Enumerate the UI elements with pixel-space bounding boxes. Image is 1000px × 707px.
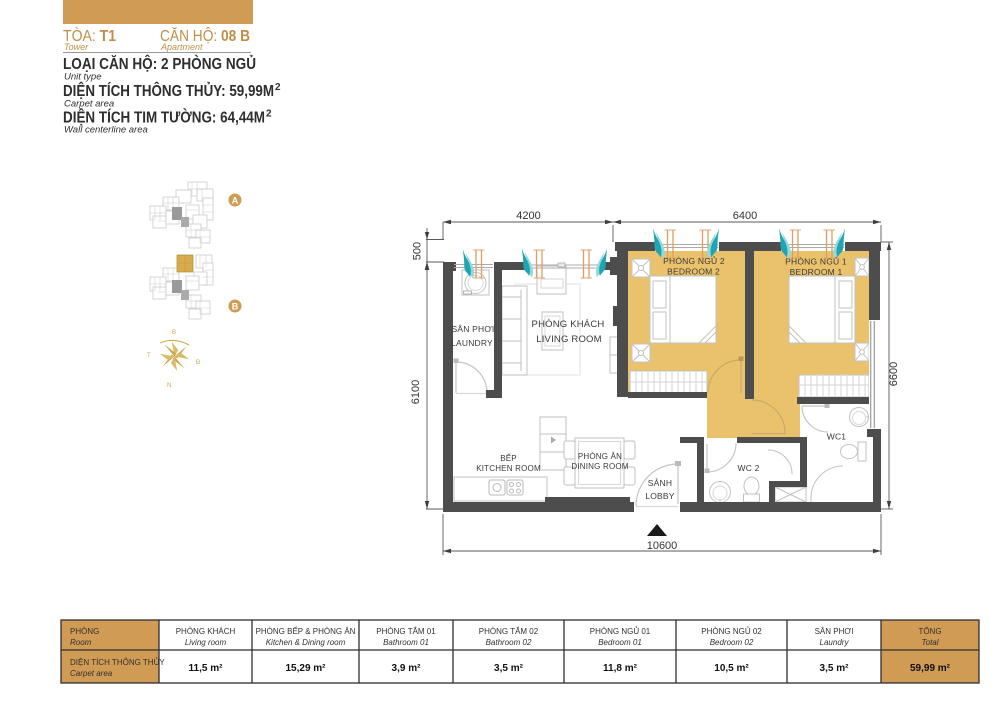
svg-text:3,9 m²: 3,9 m²	[392, 663, 422, 674]
svg-text:11,8 m²: 11,8 m²	[603, 663, 638, 674]
svg-text:11,5 m²: 11,5 m²	[189, 663, 224, 674]
svg-text:PHÒNG TẮM 02: PHÒNG TẮM 02	[479, 627, 539, 636]
svg-text:N: N	[167, 383, 171, 389]
svg-text:B: B	[232, 302, 239, 312]
svg-text:Apartment: Apartment	[160, 42, 203, 52]
svg-text:SÂN PHƠI: SÂN PHƠI	[452, 324, 495, 334]
svg-text:PHÒNG NGỦ 02: PHÒNG NGỦ 02	[701, 627, 762, 636]
svg-text:15,29 m²: 15,29 m²	[285, 663, 326, 674]
svg-text:3,5 m²: 3,5 m²	[494, 663, 524, 674]
svg-text:3,5 m²: 3,5 m²	[820, 663, 850, 674]
svg-text:Carpet area: Carpet area	[64, 99, 114, 110]
svg-text:BEDROOM 2: BEDROOM 2	[667, 267, 720, 277]
svg-text:Unit type: Unit type	[64, 72, 102, 83]
svg-text:2: 2	[266, 109, 272, 120]
svg-text:LAUNDRY: LAUNDRY	[451, 338, 493, 348]
svg-text:Bathroom 01: Bathroom 01	[383, 638, 429, 647]
svg-text:DIỆN TÍCH THÔNG THỦY: 59,99M: DIỆN TÍCH THÔNG THỦY: 59,99M	[63, 81, 274, 100]
svg-text:10,5 m²: 10,5 m²	[714, 663, 749, 674]
svg-text:6400: 6400	[733, 210, 757, 222]
svg-text:Wall centerline area: Wall centerline area	[64, 125, 148, 136]
svg-text:Laundry: Laundry	[820, 638, 850, 647]
svg-text:LOBBY: LOBBY	[645, 491, 674, 501]
svg-text:PHÒNG TẮM 01: PHÒNG TẮM 01	[376, 627, 436, 636]
svg-text:6100: 6100	[410, 380, 422, 404]
svg-text:Total: Total	[921, 638, 938, 647]
svg-text:500: 500	[412, 242, 424, 260]
svg-text:WC 2: WC 2	[737, 463, 759, 473]
svg-text:Bedroom 01: Bedroom 01	[598, 638, 642, 647]
svg-text:KITCHEN ROOM: KITCHEN ROOM	[476, 464, 541, 473]
svg-text:PHÒNG ĂN: PHÒNG ĂN	[578, 452, 622, 461]
svg-text:PHÒNG: PHÒNG	[70, 627, 99, 636]
svg-text:LOẠI CĂN HỘ: 2 PHÒNG NGỦ: LOẠI CĂN HỘ: 2 PHÒNG NGỦ	[63, 54, 256, 73]
svg-text:PHÒNG NGỦ 2: PHÒNG NGỦ 2	[663, 255, 725, 266]
svg-text:6600: 6600	[888, 362, 900, 386]
svg-text:SÂN PHƠI: SÂN PHƠI	[815, 627, 854, 636]
svg-text:BEDROOM 1: BEDROOM 1	[790, 267, 843, 277]
svg-text:Living room: Living room	[185, 638, 227, 647]
svg-text:Kitchen & Dining room: Kitchen & Dining room	[266, 638, 346, 647]
svg-text:Đ: Đ	[196, 360, 201, 366]
svg-text:Bedroom 02: Bedroom 02	[710, 638, 754, 647]
svg-text:PHÒNG BẾP & PHÒNG ĂN: PHÒNG BẾP & PHÒNG ĂN	[256, 626, 356, 636]
svg-text:59,99 m²: 59,99 m²	[910, 663, 951, 674]
svg-text:BẾP: BẾP	[500, 453, 517, 463]
svg-text:PHÒNG NGỦ 01: PHÒNG NGỦ 01	[590, 627, 651, 636]
svg-text:T: T	[147, 353, 151, 359]
svg-text:B: B	[172, 330, 176, 336]
svg-text:LIVING ROOM: LIVING ROOM	[536, 334, 602, 345]
svg-text:PHÒNG KHÁCH: PHÒNG KHÁCH	[532, 319, 605, 330]
svg-text:TỔNG: TỔNG	[918, 627, 941, 636]
svg-text:10600: 10600	[647, 540, 678, 552]
svg-text:2: 2	[275, 82, 281, 93]
svg-text:4200: 4200	[516, 210, 540, 222]
svg-text:PHÒNG NGỦ 1: PHÒNG NGỦ 1	[785, 256, 847, 267]
svg-text:Bathroom 02: Bathroom 02	[486, 638, 532, 647]
svg-text:Room: Room	[70, 638, 92, 647]
svg-text:PHÒNG KHÁCH: PHÒNG KHÁCH	[176, 627, 236, 636]
svg-text:WC1: WC1	[827, 432, 847, 442]
svg-text:DIỆN TÍCH THÔNG THỦY: DIỆN TÍCH THÔNG THỦY	[70, 658, 165, 667]
svg-text:Tower: Tower	[64, 42, 89, 52]
svg-text:DINING ROOM: DINING ROOM	[571, 462, 628, 471]
svg-text:A: A	[232, 196, 239, 206]
svg-text:Carpet area: Carpet area	[70, 669, 113, 678]
svg-text:SẢNH: SẢNH	[648, 477, 672, 488]
